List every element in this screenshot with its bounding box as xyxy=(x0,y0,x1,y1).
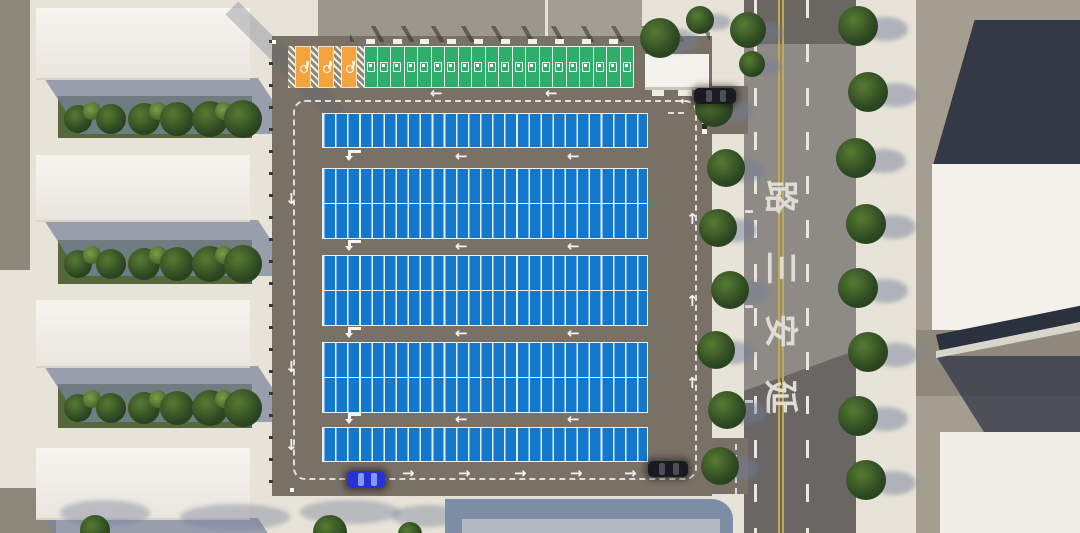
turn-arrow-head xyxy=(345,419,353,424)
ev-stall xyxy=(499,46,513,88)
wheelchair-icon xyxy=(298,61,310,75)
gatehouse xyxy=(645,54,709,90)
hatch-buffer xyxy=(311,46,318,88)
edge-tick xyxy=(745,210,753,213)
lane-line-dashed xyxy=(806,0,809,533)
ev-charger-icon xyxy=(488,62,497,73)
ev-charger-icon xyxy=(501,62,510,73)
ev-charger-icon-port xyxy=(463,64,466,67)
ev-charger-icon-port xyxy=(530,64,533,67)
tree xyxy=(224,100,262,138)
tree xyxy=(640,18,680,58)
car-windshield xyxy=(706,90,712,102)
tree xyxy=(701,447,739,485)
tree xyxy=(96,249,126,279)
aisle-turn-arrow xyxy=(344,327,362,339)
turn-arrow-head xyxy=(345,246,353,251)
side-road-strip xyxy=(0,0,30,270)
ev-charger-icon-port xyxy=(422,64,425,67)
turn-arrow-head xyxy=(345,156,353,161)
aisle-turn-arrow xyxy=(344,150,362,162)
ev-stall xyxy=(621,46,635,88)
hatch-buffer xyxy=(357,46,364,88)
flow-arrow-east: → xyxy=(402,466,415,480)
tree xyxy=(96,393,126,423)
ev-stall xyxy=(364,46,378,88)
car-rear-glass xyxy=(371,473,377,486)
ev-stall xyxy=(432,46,446,88)
charging-pile xyxy=(582,39,591,44)
tree xyxy=(838,6,878,46)
car-rear-glass xyxy=(720,90,726,102)
tree xyxy=(739,51,765,77)
ev-stall xyxy=(391,46,405,88)
ev-charger-icon-port xyxy=(382,64,385,67)
tree xyxy=(224,389,262,427)
flow-arrow-east: → xyxy=(458,466,471,480)
entrance-dash xyxy=(668,112,684,114)
ev-stall xyxy=(418,46,432,88)
charging-pile xyxy=(366,39,375,44)
hatch-buffer xyxy=(288,46,295,88)
tree xyxy=(686,6,714,34)
ev-charger-icon xyxy=(461,62,470,73)
ev-stall xyxy=(486,46,500,88)
ev-charger-icon-port xyxy=(395,64,398,67)
flow-arrow-west: ← xyxy=(545,86,558,100)
aisle-arrow-west: ← xyxy=(567,149,580,163)
ev-charger-icon-port xyxy=(449,64,452,67)
car-blue xyxy=(347,471,385,488)
wheelchair-icon-back xyxy=(305,63,309,69)
ev-stall xyxy=(526,46,540,88)
tree xyxy=(697,331,735,369)
car-windshield xyxy=(659,463,665,475)
road-name-char: 安 xyxy=(758,309,802,353)
ev-charger-icon xyxy=(407,62,416,73)
tree xyxy=(848,332,888,372)
road-name-char: 路 xyxy=(758,175,802,219)
ev-charger-icon xyxy=(474,62,483,73)
charging-pile xyxy=(501,39,510,44)
ev-charger-icon-port xyxy=(611,64,614,67)
aisle-arrow-west: ← xyxy=(455,326,468,340)
ev-stall xyxy=(459,46,473,88)
ev-charger-icon xyxy=(434,62,443,73)
wheelchair-icon xyxy=(321,61,333,75)
ev-charger-icon-port xyxy=(584,64,587,67)
ev-charger-icon xyxy=(542,62,551,73)
aerial-parking-site-plan: 路三安延 ←←→→→→→↓↓↓↑↑↑←←←←←←←←← xyxy=(0,0,1080,533)
flow-arrow-north: ↑ xyxy=(686,294,699,308)
charging-pile xyxy=(474,39,483,44)
flow-arrow-south: ↓ xyxy=(285,192,298,206)
ev-stall xyxy=(553,46,567,88)
tree xyxy=(96,104,126,134)
ev-stall xyxy=(580,46,594,88)
white-building xyxy=(940,432,1080,533)
car-windshield xyxy=(358,473,364,486)
aisle-arrow-west: ← xyxy=(567,239,580,253)
tree xyxy=(848,72,888,112)
aisle-arrow-west: ← xyxy=(455,412,468,426)
car-rear-glass xyxy=(673,463,679,475)
ev-stall xyxy=(513,46,527,88)
tree xyxy=(838,268,878,308)
ev-charger-icon xyxy=(380,62,389,73)
tree-shadow xyxy=(300,500,400,524)
tree xyxy=(160,391,194,425)
tree xyxy=(160,247,194,281)
tree xyxy=(160,102,194,136)
ev-charger-icon-port xyxy=(571,64,574,67)
tree-shadow xyxy=(180,504,290,530)
ev-charger-icon-port xyxy=(503,64,506,67)
ev-charger-icon xyxy=(555,62,564,73)
aisle-arrow-west: ← xyxy=(455,149,468,163)
ev-stall xyxy=(472,46,486,88)
ev-stall xyxy=(567,46,581,88)
road-name-char: 三 xyxy=(758,246,802,290)
aisle-turn-arrow xyxy=(344,413,362,425)
slate-building-facade xyxy=(462,519,720,533)
tree xyxy=(224,245,262,283)
turn-arrow-head xyxy=(345,333,353,338)
tree xyxy=(836,138,876,178)
flow-arrow-north: ↑ xyxy=(686,212,699,226)
hatch-buffer xyxy=(334,46,341,88)
charging-pile xyxy=(420,39,429,44)
tree xyxy=(707,149,745,187)
ev-stall xyxy=(445,46,459,88)
wheelchair-icon-back xyxy=(351,63,355,69)
tree xyxy=(846,204,886,244)
ev-stall xyxy=(405,46,419,88)
tree xyxy=(708,391,746,429)
flow-arrow-south: ↓ xyxy=(285,438,298,452)
tree xyxy=(711,271,749,309)
wheelchair-icon-back xyxy=(328,63,332,69)
white-building xyxy=(932,164,1080,332)
ev-charger-icon-port xyxy=(625,64,628,67)
ev-charger-icon-port xyxy=(369,64,372,67)
aisle-arrow-west: ← xyxy=(455,239,468,253)
ev-charger-icon xyxy=(420,62,429,73)
charging-pile xyxy=(447,39,456,44)
tree xyxy=(846,460,886,500)
gatehouse-pad xyxy=(652,90,664,96)
flow-arrow-west: ← xyxy=(430,86,443,100)
car-black-entrance xyxy=(694,88,736,104)
tree xyxy=(699,209,737,247)
ev-stall xyxy=(378,46,392,88)
wheelchair-icon xyxy=(344,61,356,75)
accessible-stall xyxy=(318,46,334,88)
flow-arrow-east: → xyxy=(570,466,583,480)
aisle-arrow-west: ← xyxy=(567,326,580,340)
ev-stall xyxy=(594,46,608,88)
flow-arrow-east: → xyxy=(514,466,527,480)
ev-charger-icon-port xyxy=(490,64,493,67)
flow-arrow-north: ↑ xyxy=(686,376,699,390)
warehouse-building xyxy=(36,155,250,222)
ev-charger-icon xyxy=(393,62,402,73)
wall-corner-dot xyxy=(290,488,294,492)
ev-charger-icon xyxy=(582,62,591,73)
tree xyxy=(730,12,766,48)
ev-charger-icon xyxy=(528,62,537,73)
accessible-stall xyxy=(295,46,311,88)
accessible-stall xyxy=(341,46,357,88)
ev-charger-icon xyxy=(623,62,632,73)
ev-stall xyxy=(540,46,554,88)
charging-pile xyxy=(609,39,618,44)
ev-charger-icon xyxy=(596,62,605,73)
flow-arrow-south: ↓ xyxy=(285,360,298,374)
ev-charger-icon xyxy=(367,62,376,73)
aisle-turn-arrow xyxy=(344,240,362,252)
ev-charger-icon xyxy=(515,62,524,73)
aisle-arrow-west: ← xyxy=(567,412,580,426)
boundary-fence xyxy=(269,40,273,494)
ev-charger-icon-port xyxy=(409,64,412,67)
car-black xyxy=(648,461,688,477)
ev-charger-icon-port xyxy=(436,64,439,67)
ev-charger-icon xyxy=(569,62,578,73)
ev-charger-icon-port xyxy=(557,64,560,67)
edge-tick xyxy=(745,305,753,308)
entrance-arrow: ← xyxy=(680,94,690,108)
tree xyxy=(838,396,878,436)
lane-line-dashed xyxy=(754,0,757,533)
ev-charger-icon-port xyxy=(476,64,479,67)
warehouse-building xyxy=(36,300,250,368)
charging-pile xyxy=(528,39,537,44)
wall-corner-dot xyxy=(272,40,276,44)
ev-charger-icon-port xyxy=(517,64,520,67)
ev-charger-icon-port xyxy=(544,64,547,67)
ev-stall xyxy=(607,46,621,88)
ev-charger-icon-port xyxy=(598,64,601,67)
flow-arrow-east: → xyxy=(624,466,637,480)
ev-charger-icon xyxy=(447,62,456,73)
warehouse-building xyxy=(36,8,250,80)
ev-charger-icon xyxy=(609,62,618,73)
charging-pile xyxy=(555,39,564,44)
charging-pile xyxy=(393,39,402,44)
